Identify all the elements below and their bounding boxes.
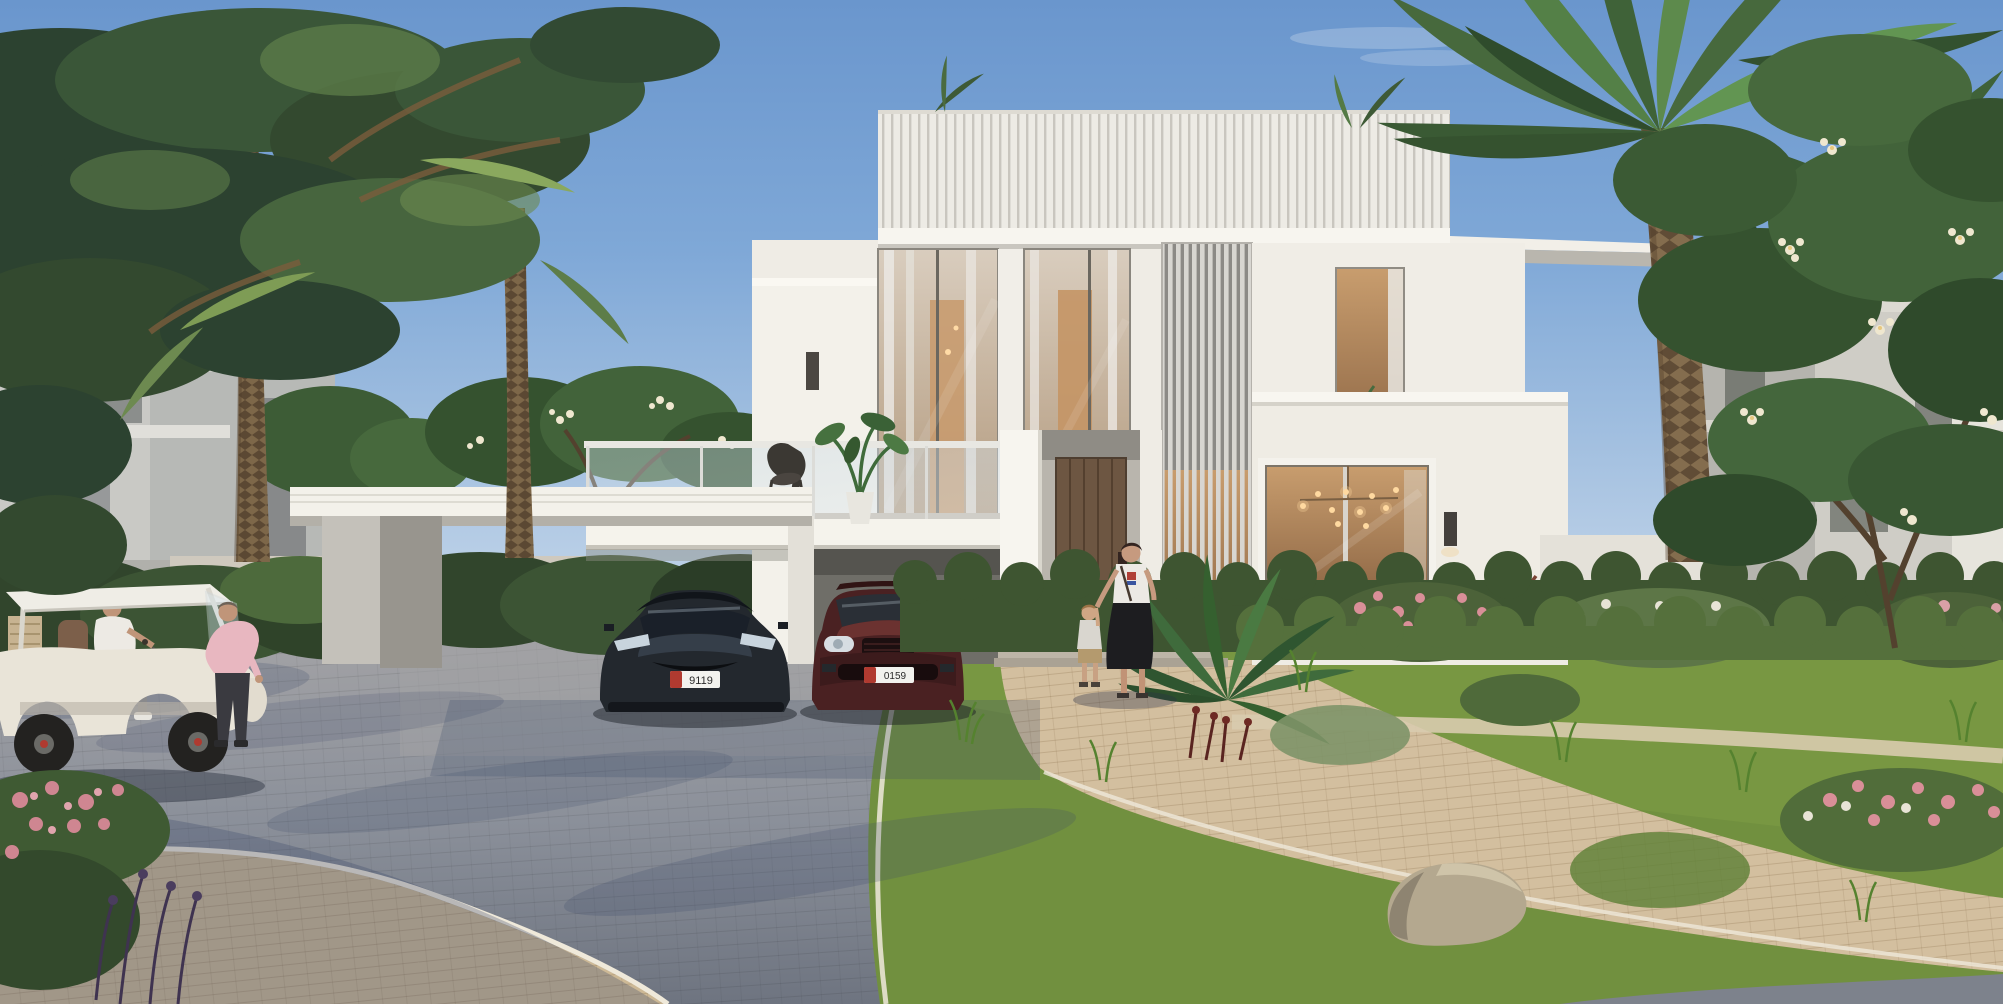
cart-wheel-rear <box>14 714 74 774</box>
pendant-light <box>945 349 951 355</box>
parapet-louvers <box>878 112 1450 228</box>
green-bush <box>1460 674 1580 726</box>
wall-sconce-ground <box>1444 512 1457 546</box>
carport-pillar-side <box>380 516 442 668</box>
house-column <box>788 516 814 664</box>
svg-text:9119: 9119 <box>689 675 713 687</box>
wall-sconce-upper <box>806 352 819 390</box>
parapet-fascia <box>878 228 1450 244</box>
ground <box>0 636 2003 1004</box>
render-canvas: 17 <box>0 0 2003 1004</box>
svg-text:0159: 0159 <box>884 671 907 682</box>
suv-plate: 0159 <box>864 667 914 683</box>
balcony-handrail <box>584 441 1032 448</box>
carport-pillar-front <box>322 516 380 664</box>
villa-exterior-photo: 17 <box>0 0 2003 1004</box>
sage-bush <box>1270 705 1410 765</box>
sedan-plate: 9119 <box>670 671 720 688</box>
